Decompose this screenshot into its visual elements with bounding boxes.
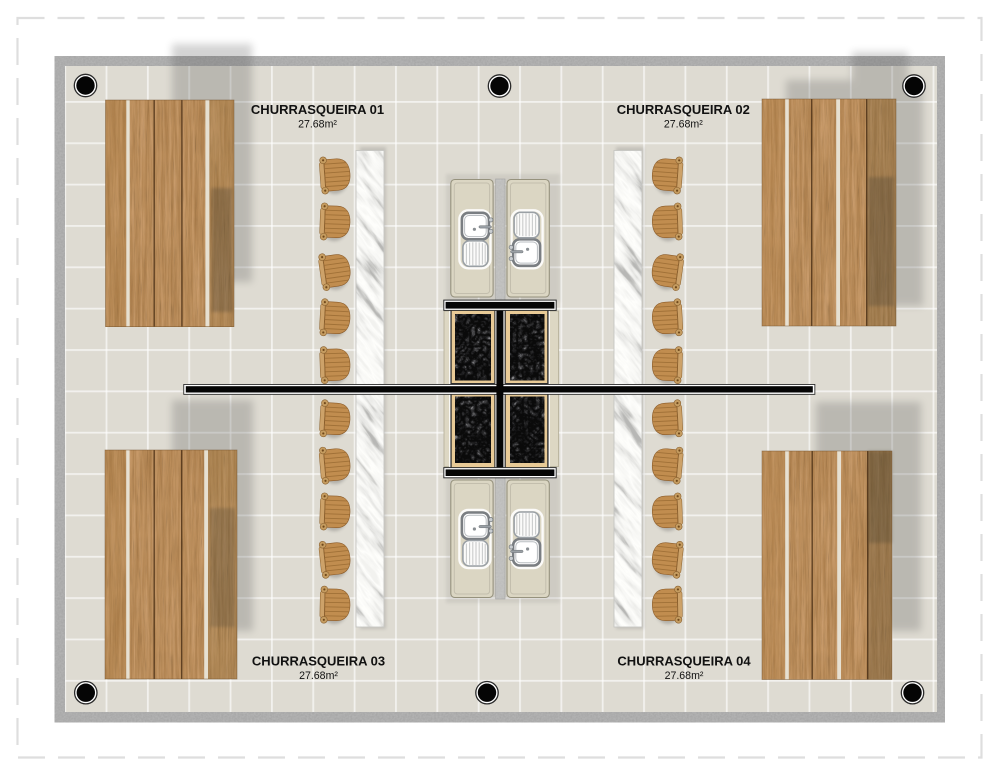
svg-text:CHURRASQUEIRA 02: CHURRASQUEIRA 02 (617, 102, 750, 117)
svg-text:CHURRASQUEIRA 03: CHURRASQUEIRA 03 (252, 654, 385, 669)
svg-text:27.68m²: 27.68m² (299, 670, 338, 682)
svg-text:CHURRASQUEIRA 01: CHURRASQUEIRA 01 (251, 102, 384, 117)
svg-text:27.68m²: 27.68m² (298, 119, 337, 131)
svg-text:CHURRASQUEIRA 04: CHURRASQUEIRA 04 (617, 654, 751, 669)
svg-text:27.68m²: 27.68m² (664, 119, 703, 131)
svg-text:27.68m²: 27.68m² (665, 670, 704, 682)
